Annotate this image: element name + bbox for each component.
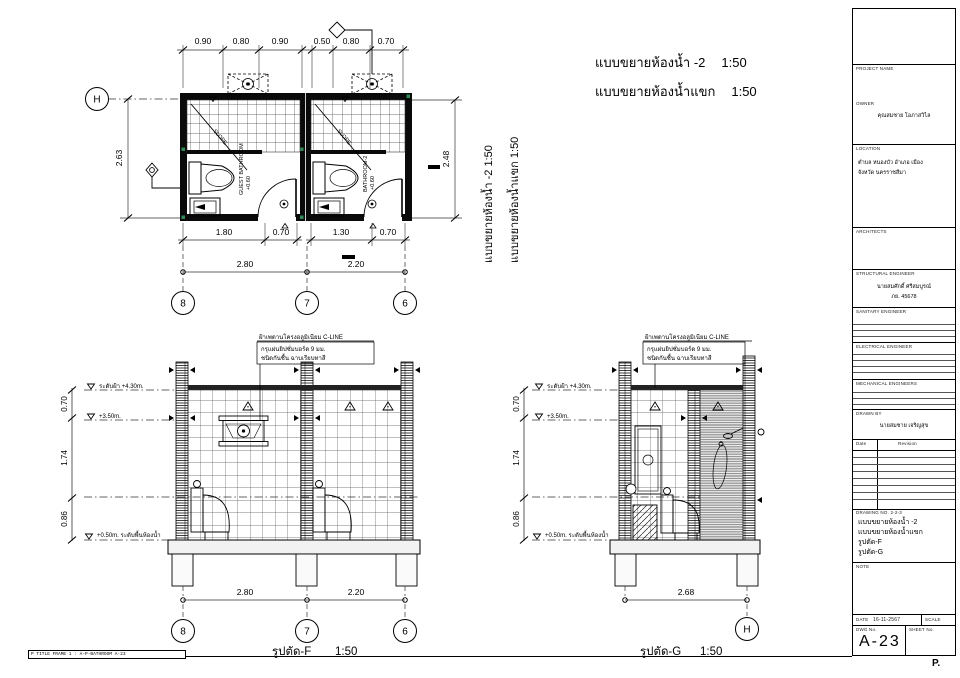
sheet-no-label: SHEET No. xyxy=(909,627,934,632)
dim-label: 0.50 xyxy=(314,36,331,46)
footing-post xyxy=(737,554,758,586)
vertical-title-2: แบบขยายห้องน้ำแขก 1:50 xyxy=(505,137,523,263)
grid-bubble-label: 7 xyxy=(304,627,310,638)
wall-section xyxy=(401,362,413,540)
date-label: DATE xyxy=(856,617,868,622)
svg-text:กรุแผ่นยิปซั่มบอร์ด 9 มม.: กรุแผ่นยิปซั่มบอร์ด 9 มม. xyxy=(647,345,712,353)
sanitary-label: SANITARY ENGINEER xyxy=(856,309,906,314)
dim-label: 2.80 xyxy=(237,587,254,597)
dim-label: 0.70 xyxy=(380,227,397,237)
dim-label: 1.30 xyxy=(333,227,350,237)
structural-name: นายสมศักดิ์ ศรีสมบูรณ์ xyxy=(853,283,955,291)
grid-bubble-label: 8 xyxy=(180,299,186,310)
mechanical-label: MECHANICAL ENGINEERS xyxy=(856,381,917,386)
grid-bubble-label: H xyxy=(93,95,100,106)
sheet-number: A-23 xyxy=(859,633,901,651)
plan-grid-dimensions xyxy=(183,246,405,291)
fixture-tag xyxy=(626,484,636,494)
level-label: +0.50m. ระดับพื้นห้องน้ำ xyxy=(97,529,161,539)
dim-label: 0.70 xyxy=(60,396,69,412)
drawing-list-label: DRAWING NO. 2-2-3 xyxy=(856,510,902,515)
wall-section xyxy=(743,356,755,566)
page-corner-mark: P. xyxy=(932,658,940,669)
exhaust-fan-icon xyxy=(228,74,392,94)
grid-bubble-label: 7 xyxy=(304,299,310,310)
wall-section xyxy=(619,362,631,540)
block-insert-point xyxy=(182,148,186,152)
revision-header: Revision xyxy=(898,441,917,446)
dim-label: 0.86 xyxy=(512,511,521,527)
plot-stamp: P TITLE FRAME 1 : A-P-BATHROOM A-23 xyxy=(28,650,186,659)
vanity-counter xyxy=(633,505,657,540)
dim-label: 0.70 xyxy=(273,227,290,237)
section-g: ฝ้าเพดานโครงอลูมิเนียม C-LINE กรุแผ่นยิป… xyxy=(512,333,764,658)
svg-text:กรุแผ่นยิปซั่มบอร์ด 9 มม.: กรุแผ่นยิปซั่มบอร์ด 9 มม. xyxy=(261,345,326,353)
dim-label: 0.90 xyxy=(272,36,289,46)
room2-label: BATHROOM-2 xyxy=(363,156,369,192)
dim-label: 0.70 xyxy=(378,36,395,46)
structural-label: STRUCTURAL ENGINEER xyxy=(856,271,915,276)
owner-label: OWNER xyxy=(856,101,874,106)
level-label: +3.50m. xyxy=(547,414,569,420)
ceiling-band xyxy=(188,385,401,390)
dim-label: 0.70 xyxy=(512,396,521,412)
shower-tile-area xyxy=(311,100,405,152)
svg-text:ฝ้าเพดานโครงอลูมิเนียม C-LINE: ฝ้าเพดานโครงอลูมิเนียม C-LINE xyxy=(645,333,729,341)
scale-label: SCALE xyxy=(925,617,941,622)
sink-plan-icon xyxy=(190,198,220,216)
plan-title-1: แบบขยายห้องน้ำ -21:50 xyxy=(595,52,747,73)
wall-section xyxy=(176,362,188,540)
room2-level: +0.60 xyxy=(370,176,376,190)
level-label: ระดับฝ้า +4.30m. xyxy=(547,383,592,390)
tiled-wall xyxy=(313,390,401,540)
ceiling-band xyxy=(631,385,743,390)
plan-left-wall xyxy=(180,93,187,221)
level-label: ระดับฝ้า +4.30m. xyxy=(99,383,144,390)
shower-curb xyxy=(187,150,262,154)
drawn-by-label: DRAWN BY xyxy=(856,411,882,416)
dim-label: 0.86 xyxy=(60,511,69,527)
location-line2: จังหวัด นครราชสีมา xyxy=(858,169,906,177)
level-label: +3.50m. xyxy=(99,414,121,420)
dim-label: 1.74 xyxy=(512,450,521,466)
drawing-list-item: รูปตัด-G xyxy=(858,547,883,558)
dim-label: 0.90 xyxy=(195,36,212,46)
project-label: PROJECT NAME xyxy=(856,66,894,71)
dim-label: 2.63 xyxy=(114,149,124,166)
dim-label: 2.48 xyxy=(441,150,451,167)
footing-post xyxy=(172,554,193,586)
svg-text:ฝ้าเพดานโครงอลูมิเนียม C-LINE: ฝ้าเพดานโครงอลูมิเนียม C-LINE xyxy=(259,333,343,341)
date-value: 16-11-2567 xyxy=(873,617,900,623)
toilet-plan-icon xyxy=(313,162,358,194)
sink-plan-icon xyxy=(314,198,344,216)
shower-wall-band xyxy=(700,390,743,540)
grid-bubble-label: 6 xyxy=(402,299,408,310)
ceiling-note: ฝ้าเพดานโครงอลูมิเนียม C-LINE กรุแผ่นยิป… xyxy=(643,333,752,388)
title-block: PROJECT NAME OWNER คุณสมชาย โอภาสวิไล LO… xyxy=(852,8,956,656)
drawn-by-name: นายสมชาย เจริญสุข xyxy=(853,422,955,430)
footing-post xyxy=(296,554,317,586)
dim-label: 1.74 xyxy=(60,450,69,466)
dim-label: 2.80 xyxy=(237,259,254,269)
cad-linework: SLOPE SLOPE GUEST BATHROOM +0.60 BATHROO… xyxy=(0,0,960,678)
level-label: +0.50m. ระดับพื้นห้องน้ำ xyxy=(545,529,609,539)
grid-bubble-label: 6 xyxy=(402,627,408,638)
dim-label: 1.80 xyxy=(216,227,233,237)
tiled-wall xyxy=(188,390,301,540)
floor-slab xyxy=(168,540,420,554)
note-label: NOTE xyxy=(856,564,869,569)
owner-name: คุณสมชาย โอภาสวิไล xyxy=(853,112,955,120)
grid-extensions xyxy=(183,586,405,619)
floor-slab xyxy=(610,540,760,554)
electrical-label: ELECTRICAL ENGINEER xyxy=(856,344,912,349)
svg-text:ชนิดกันชื้น ฉาบเรียบทาสี: ชนิดกันชื้น ฉาบเรียบทาสี xyxy=(261,352,326,362)
dwg-no-label: DWG No. xyxy=(856,627,877,632)
dim-label: 2.20 xyxy=(348,587,365,597)
plan-bottom-wall xyxy=(180,214,258,221)
drain-symbol xyxy=(146,163,180,188)
grid-bubble-label: 8 xyxy=(180,627,186,638)
structural-license: ภย. 45678 xyxy=(853,293,955,301)
vertical-title-1: แบบขยายห้องน้ำ -2 1:50 xyxy=(479,145,497,263)
shower-curb xyxy=(311,150,386,154)
room1-label: GUEST BATHROOM xyxy=(239,143,245,195)
svg-text:ชนิดกันชื้น ฉาบเรียบทาสี: ชนิดกันชื้น ฉาบเรียบทาสี xyxy=(647,352,712,362)
dim-label: 2.68 xyxy=(678,587,695,597)
section-f: ฝ้าเพดานโครงอลูมิเนียม C-LINE กรุแผ่นยิป… xyxy=(60,333,420,658)
plan-top-dimensions xyxy=(177,45,409,88)
plan-right-dimension xyxy=(412,100,462,218)
drawing-sheet: SLOPE SLOPE GUEST BATHROOM +0.60 BATHROO… xyxy=(0,0,960,678)
room1-level: +0.60 xyxy=(246,176,252,190)
location-label: LOCATION xyxy=(856,146,880,151)
dim-label: 0.80 xyxy=(343,36,360,46)
footing-post xyxy=(396,554,417,586)
revision-date-header: Date xyxy=(856,441,866,446)
footing-post xyxy=(615,554,636,586)
location-line1: ตำบล หนองบัว อำเภอ เมือง xyxy=(858,159,923,167)
dim-label: 2.20 xyxy=(348,259,365,269)
plan-right-wall xyxy=(405,93,412,221)
dim-label: 0.80 xyxy=(233,36,250,46)
plan-title-2: แบบขยายห้องน้ำแขก1:50 xyxy=(595,81,757,102)
architect-label: ARCHITECTS xyxy=(856,229,887,234)
floor-plan: SLOPE SLOPE GUEST BATHROOM +0.60 BATHROO… xyxy=(86,22,463,315)
grid-bubble-label: H xyxy=(743,625,750,636)
toilet-plan-icon xyxy=(189,162,234,194)
